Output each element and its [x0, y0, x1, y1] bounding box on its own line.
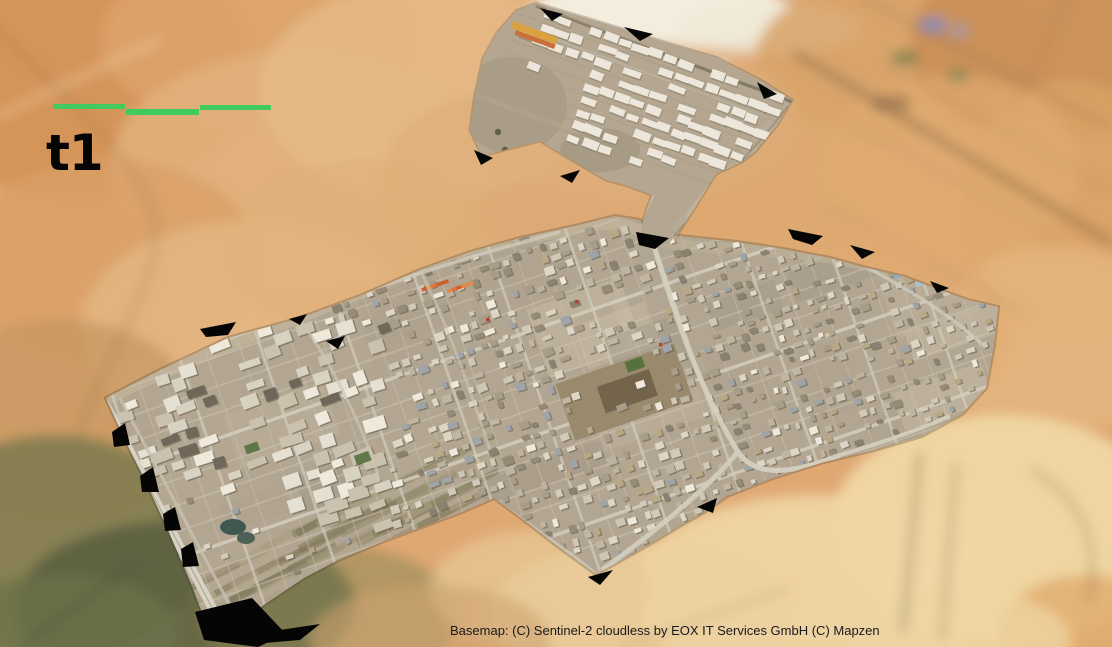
timeline-epoch-label: t1 — [46, 124, 103, 182]
map-viewer[interactable]: t1 Basemap: (C) Sentinel-2 cloudless by … — [0, 0, 1112, 647]
timeline-segment-1[interactable] — [53, 104, 125, 109]
timeline-segment-3[interactable] — [200, 105, 271, 110]
basemap-attribution: Basemap: (C) Sentinel-2 cloudless by EOX… — [450, 623, 880, 638]
timeline-segment-2[interactable] — [126, 109, 199, 115]
